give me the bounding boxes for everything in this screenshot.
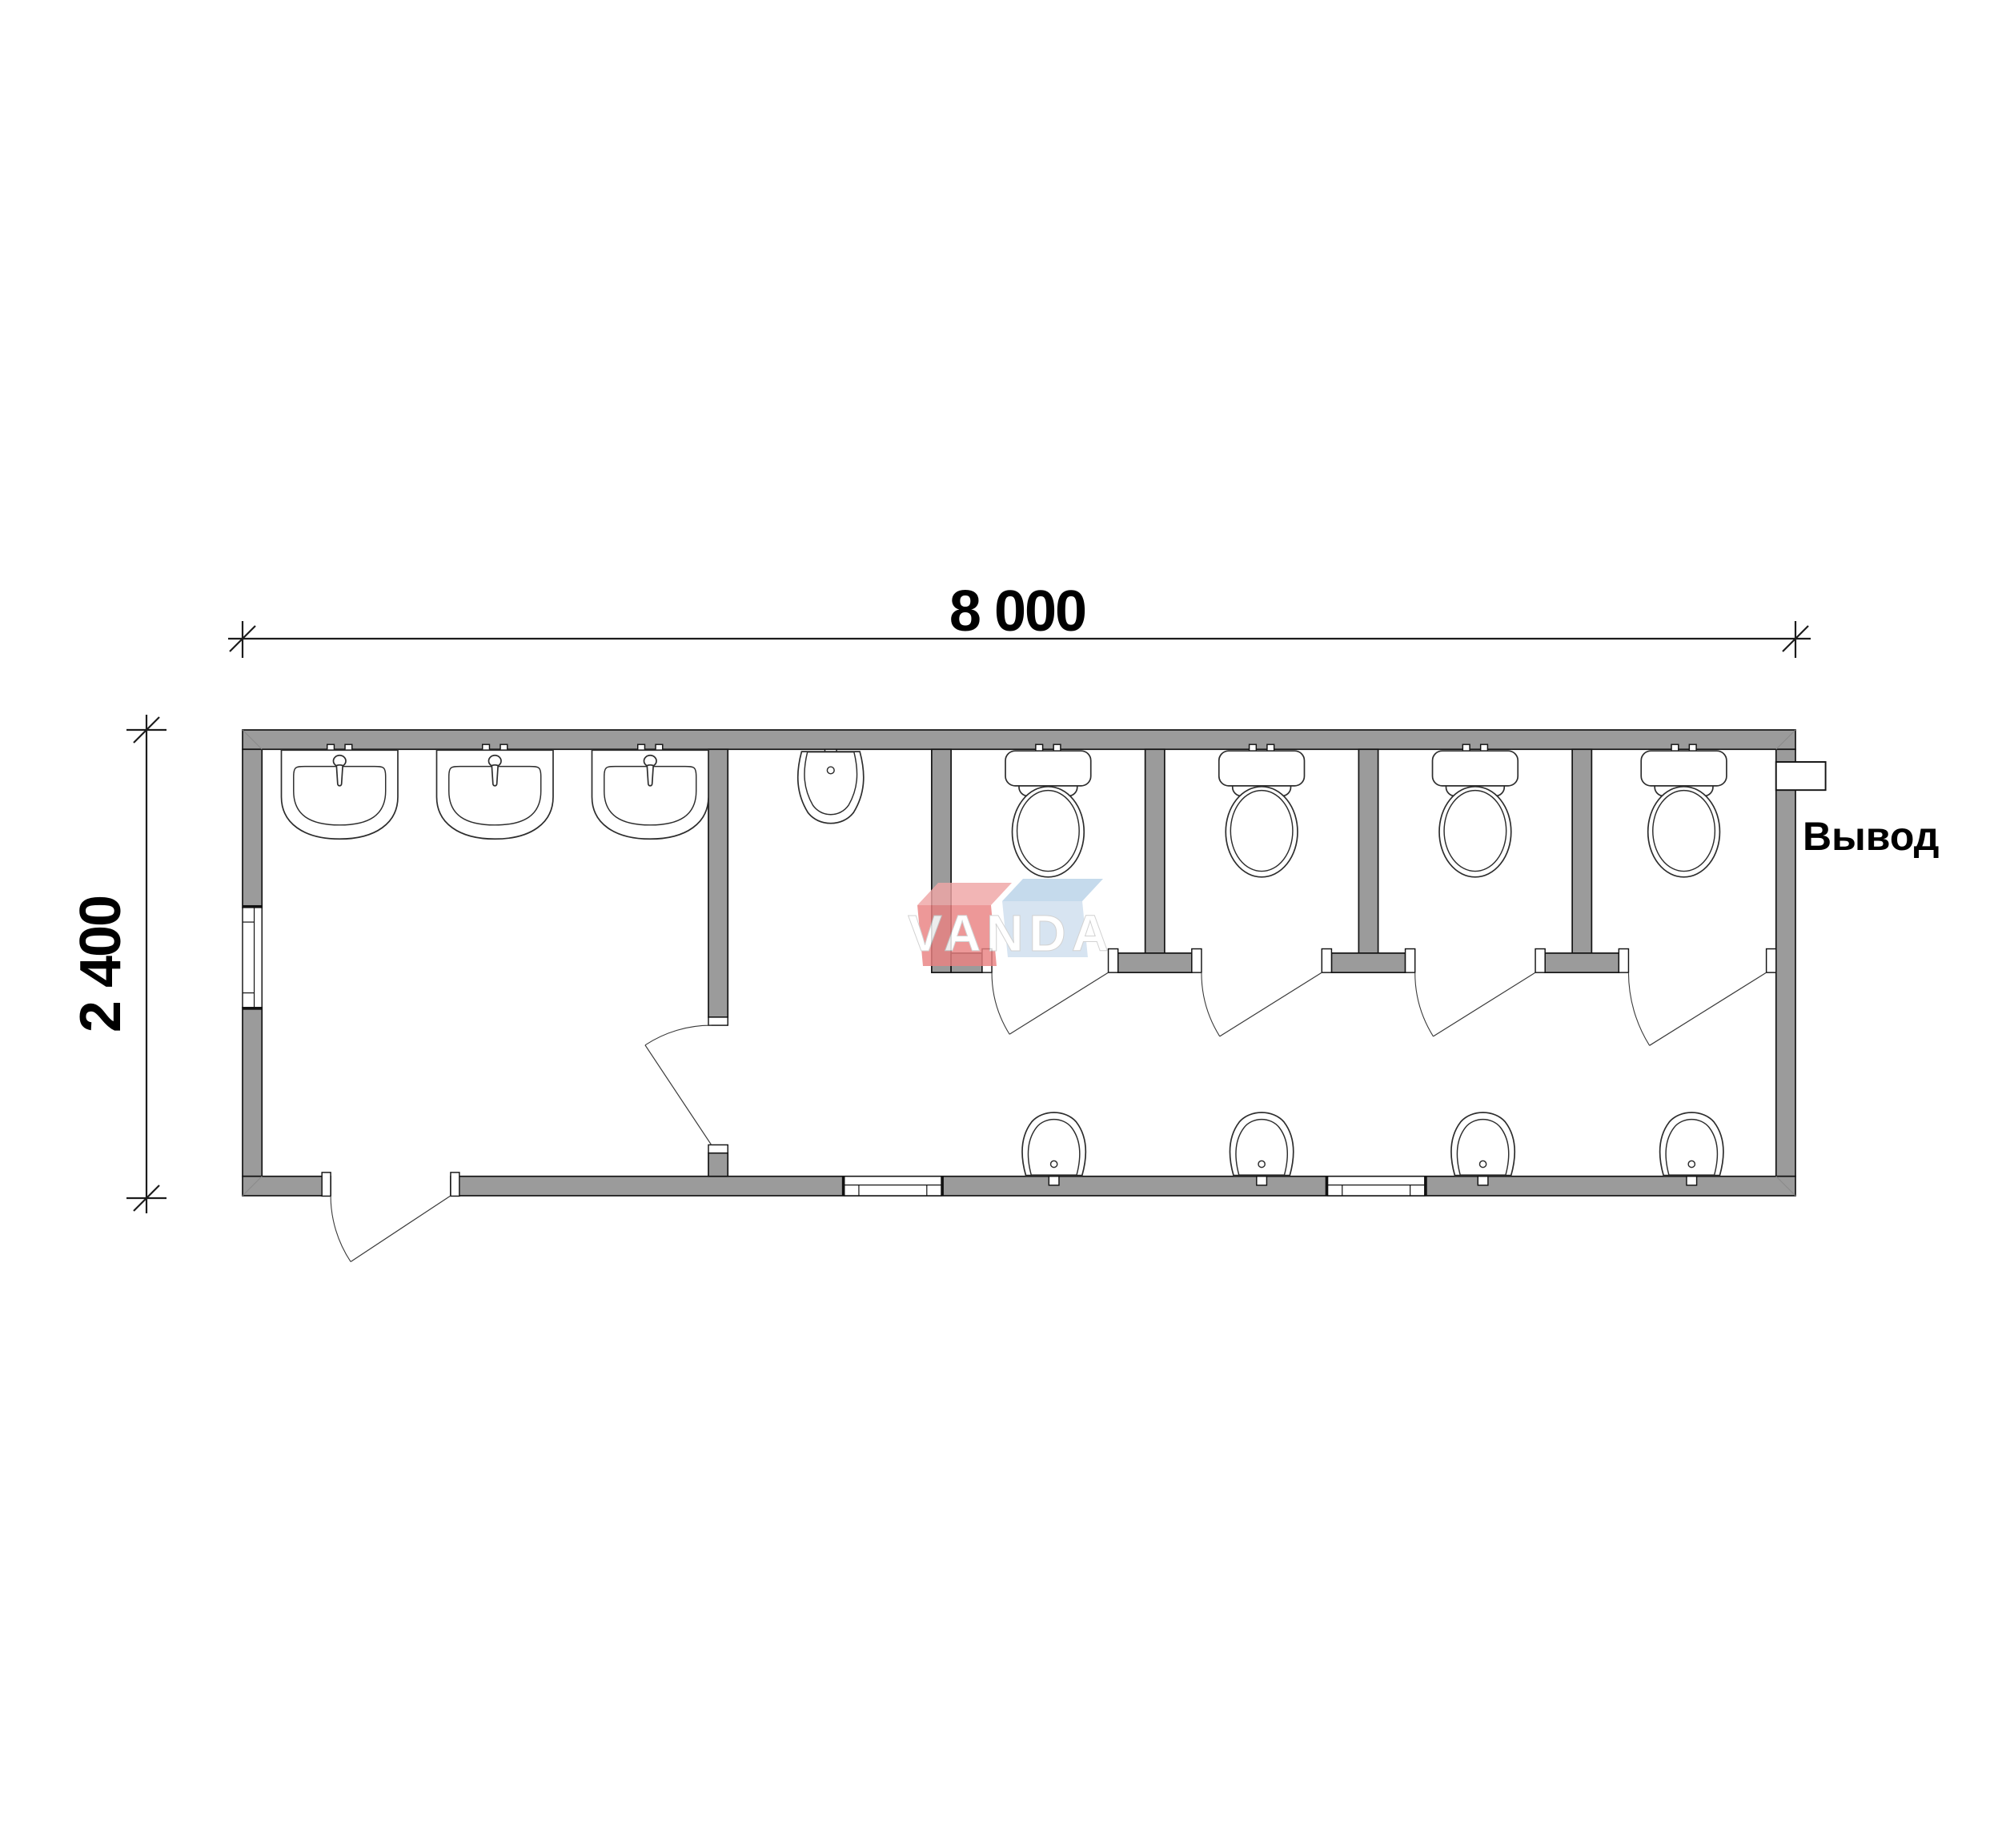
door-jamb <box>1535 949 1545 973</box>
cubicle-partition-3 <box>1572 749 1591 953</box>
logo-text: VANDA <box>908 904 1114 962</box>
entrance-door <box>331 1196 451 1261</box>
partition-washroom <box>708 749 728 1017</box>
door-swing-arc <box>1415 972 1434 1036</box>
window-end-cap <box>941 1177 944 1196</box>
plan-mm-space <box>243 730 1826 1261</box>
door-leaf <box>1433 972 1535 1036</box>
cubicle-door-1 <box>992 972 1109 1034</box>
logo-box-blue-top <box>1002 879 1103 901</box>
door-jamb <box>1619 949 1628 973</box>
outlet-label: Вывод <box>1803 814 1940 859</box>
dimension-width: 8 000 <box>228 579 1811 658</box>
sink-symbol <box>592 744 709 839</box>
window-symbol <box>1326 1177 1427 1196</box>
faucet-spout <box>491 765 498 786</box>
cubicle-door-3 <box>1415 972 1535 1036</box>
bottom-wall-left <box>243 1177 331 1196</box>
door-leaf <box>351 1196 451 1261</box>
sink-symbol <box>282 744 399 839</box>
water-supply-mark <box>1257 1177 1267 1185</box>
cubicle-front-T2 <box>1331 953 1405 972</box>
toilet-bowl-outer <box>1226 787 1298 877</box>
door-jamb <box>1406 949 1415 973</box>
wall-end-cap <box>708 1144 728 1152</box>
door-jamb <box>322 1173 331 1197</box>
water-supply-mark <box>1687 1177 1697 1185</box>
cubicle-partition-2 <box>1358 749 1378 953</box>
urinal-outline <box>1022 1112 1085 1176</box>
toilet-symbol <box>1005 744 1091 877</box>
toilet-bowl-outer <box>1648 787 1720 877</box>
window-symbol <box>842 1177 944 1196</box>
door-jamb <box>1192 949 1202 973</box>
wall-end-cap <box>708 1017 728 1025</box>
door-swing-arc <box>1202 972 1220 1036</box>
water-supply-mark <box>1478 1177 1488 1185</box>
urinal-symbol <box>1022 1112 1085 1185</box>
left-wall-upper <box>243 749 262 908</box>
urinal-outline <box>798 752 864 824</box>
cubicle-front-T3 <box>1545 953 1619 972</box>
outlet-pipe <box>1776 762 1826 790</box>
faucet-spout <box>647 765 653 786</box>
cubicle-door-2 <box>1202 972 1322 1036</box>
door-jamb <box>1767 949 1776 973</box>
door-jamb <box>451 1173 459 1197</box>
urinal-symbol <box>1230 1112 1293 1185</box>
door-swing-arc <box>992 972 1009 1034</box>
toilet-bowl-outer <box>1013 787 1085 877</box>
plan-layer <box>243 730 1826 1261</box>
window-symbol <box>243 905 262 1010</box>
door-leaf <box>1650 972 1767 1045</box>
left-wall-lower <box>243 1008 262 1177</box>
vanda-watermark: VANDA <box>908 879 1114 966</box>
cubicle-partition-1 <box>1145 749 1165 953</box>
dimension-height: 2 400 <box>69 715 166 1213</box>
right-wall <box>1776 749 1795 1177</box>
urinal-symbol <box>798 749 864 823</box>
top-wall <box>243 730 1795 749</box>
window-end-cap <box>243 905 262 908</box>
cubicle-front-T1 <box>1118 953 1192 972</box>
bottom-wall-right <box>451 1177 1795 1196</box>
window-end-cap <box>243 1007 262 1009</box>
window-end-cap <box>842 1177 845 1196</box>
cubicle-door-4 <box>1628 972 1766 1045</box>
door-swing-arc <box>1628 972 1649 1045</box>
sink-symbol <box>437 744 554 839</box>
toilet-tank <box>1433 751 1519 786</box>
toilet-symbol <box>1433 744 1519 877</box>
door-jamb <box>1322 949 1331 973</box>
toilet-tank <box>1641 751 1727 786</box>
toilet-tank <box>1219 751 1305 786</box>
faucet-spout <box>336 765 343 786</box>
width-dimension-label: 8 000 <box>949 579 1085 643</box>
washroom-door <box>645 1025 712 1144</box>
urinal-symbol <box>1660 1112 1723 1185</box>
window-end-cap <box>1424 1177 1426 1196</box>
height-dimension-label: 2 400 <box>69 896 133 1032</box>
partition-washroom-stub <box>708 1153 728 1177</box>
toilet-symbol <box>1641 744 1727 877</box>
door-leaf <box>645 1045 712 1145</box>
urinal-outline <box>1660 1112 1723 1176</box>
urinal-outline <box>1451 1112 1515 1176</box>
floor-plan-drawing: VANDA 8 000 2 400 Вывод <box>0 0 2014 1848</box>
toilet-symbol <box>1219 744 1305 877</box>
door-leaf <box>1009 972 1108 1034</box>
toilet-tank <box>1005 751 1091 786</box>
door-leaf <box>1220 972 1322 1036</box>
door-swing-arc <box>331 1196 351 1261</box>
floor-plan-page: VANDA 8 000 2 400 Вывод <box>0 0 2014 1848</box>
toilet-bowl-outer <box>1439 787 1511 877</box>
urinal-outline <box>1230 1112 1293 1176</box>
door-swing-arc <box>645 1025 712 1045</box>
window-end-cap <box>1326 1177 1328 1196</box>
water-supply-mark <box>1049 1177 1059 1185</box>
urinal-symbol <box>1451 1112 1515 1185</box>
